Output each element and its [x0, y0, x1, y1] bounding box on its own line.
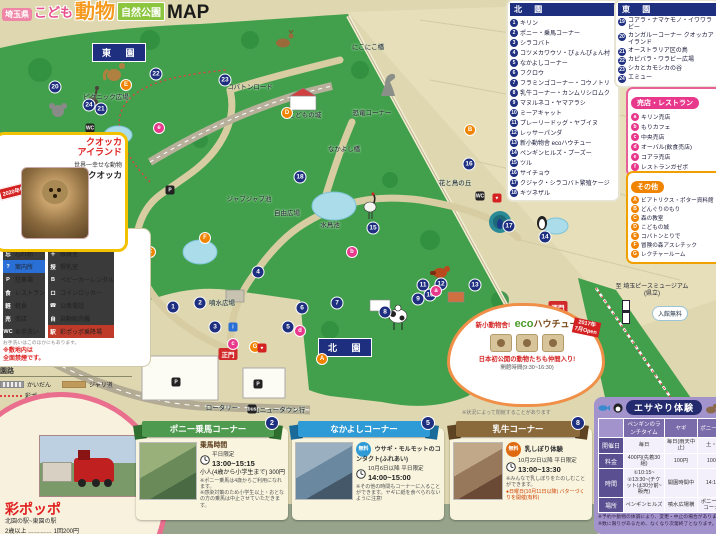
feeding-row-label: 場所	[599, 497, 624, 513]
shops-items: a キリン売店 b もりカフェ c 中央売店 d オーバル(飲食売店)	[631, 112, 716, 171]
feeding-col-penguin: ペンギンのランチタイム	[624, 419, 665, 438]
legend-icon: P	[3, 275, 13, 285]
item-label: サイチョウ	[520, 168, 550, 177]
legend-item: 自 自動販売機	[48, 312, 114, 325]
free-badge: 無料	[356, 442, 371, 457]
map-place-label: 水鳥池	[320, 219, 340, 229]
list-item: f レストランガゼボ	[631, 162, 716, 171]
item-number-badge: 16	[510, 169, 518, 177]
other-letter-marker: B	[464, 124, 476, 136]
item-letter-badge: E	[631, 232, 639, 240]
dairy-cow-corner-card: 乳牛コーナー 8 無料 乳しぼり体験 10月22日以降 平日限定 13:00~1…	[450, 428, 592, 520]
list-item: 11 プレーリードッグ・ヤブイヌ	[510, 118, 616, 127]
pony-card-photo	[139, 442, 197, 500]
pony-notes: ※ポニー乗馬は4歳からご利用になれます。※感染対策のため小学生以上・おとなの方の…	[200, 478, 285, 509]
clock-icon	[200, 455, 210, 465]
feeding-cell: 土・日	[698, 438, 716, 454]
legend-label: コインロッカー	[60, 288, 102, 297]
list-item: 1 キリン	[510, 18, 616, 27]
card-note: ※ポニー乗馬は4歳からご利用になれます。	[200, 478, 285, 491]
list-item: 13 新小動物舎 ecoハウチュー	[510, 138, 616, 147]
item-label: マヌルネコ・ヤマアラシ	[520, 98, 586, 107]
list-item: 14 ペンギンヒルズ・プーズー	[510, 148, 616, 157]
map-number-marker: 18	[294, 171, 307, 184]
crane-icon	[361, 191, 379, 221]
goat-icon	[705, 402, 716, 414]
item-number-badge: 20	[618, 33, 626, 41]
map-place-label: 自由広場	[274, 207, 300, 217]
feeding-cell: 100円	[698, 453, 716, 469]
museum-tower-icon	[622, 300, 630, 324]
map-number-marker: 13	[469, 279, 482, 292]
stairs-label: かいだん	[27, 380, 51, 389]
shop-letter-marker: d	[294, 325, 306, 337]
item-label: もりカフェ	[641, 122, 670, 131]
region-label-east: 東 園	[92, 43, 146, 62]
item-label: フクロウ	[520, 68, 544, 77]
list-item: 6 フクロウ	[510, 68, 616, 77]
feeding-cell: 400円(先着30組)	[624, 453, 665, 469]
cow-card-ribbon: 乳牛コーナー 8	[456, 421, 580, 437]
list-item: E コバトンとりで	[631, 232, 716, 240]
facility-icon: ♥	[258, 344, 267, 353]
feeding-cell: 毎日(雨天中止)	[665, 438, 698, 454]
feeding-cell: 噴水広場横	[665, 497, 698, 513]
gravel-swatch	[62, 381, 86, 388]
list-item: a キリン売店	[631, 112, 716, 121]
item-label: ポニー・乗馬コーナー	[520, 28, 580, 37]
map-number-marker: 2	[194, 297, 207, 310]
list-item: 4 コツメカワウソ・ぴょんぴょん村	[510, 48, 616, 57]
list-item: 9 マヌルネコ・ヤマアラシ	[510, 98, 616, 107]
item-number-badge: 4	[510, 49, 518, 57]
legend-label: 彩ポッポ乗降場	[60, 327, 102, 336]
pony-card-ribbon: ポニー乗馬コーナー 2	[142, 421, 274, 437]
map-number-marker: 5	[282, 321, 295, 334]
item-letter-badge: F	[631, 241, 639, 249]
item-number-badge: 2	[510, 29, 518, 37]
north-area-list: 北 園 1 キリン 2 ポニー・乗馬コーナー 3 シラコバト	[508, 1, 618, 200]
item-number-badge: 9	[510, 99, 518, 107]
legend-item: 軽 軽食	[3, 299, 45, 312]
map-place-label: なかよし橋	[328, 143, 360, 153]
eco-animal-photo	[542, 334, 564, 352]
item-label: コツメカワウソ・ぴょんぴょん村	[520, 48, 610, 57]
feeding-row-label: 料金	[599, 453, 624, 469]
cow-card-number-badge: 8	[571, 416, 585, 430]
map-place-label: 恐竜コーナー	[353, 107, 392, 117]
title-map-word: MAP	[167, 4, 209, 21]
cow-time-label: 10月22日以降 平日限定	[518, 458, 577, 465]
train-locomotive	[74, 458, 114, 482]
quokka-title-line1: クオッカ	[86, 137, 122, 147]
north-list-header: 北 園	[510, 3, 616, 16]
clock-icon	[506, 462, 516, 472]
cow-time: 13:00~13:30	[518, 465, 577, 475]
legend-item: 授 授乳室	[48, 260, 114, 273]
feeding-note: ※予約や動物の体調により、変更・中止の場合があります。	[598, 515, 716, 521]
feeding-row: 時間 ①10:15~ ②13:30~(チケットは30分前~販売) 開園時間中 1…	[599, 469, 716, 497]
eco-tagline: 日本初公開の動物たちも仲間入り!	[460, 354, 594, 363]
nakayoshi-time: 14:00~15:00	[368, 473, 424, 483]
feeding-cell: 14:15~	[698, 469, 716, 497]
feeding-table: ペンギンのランチタイム ヤギ ポニー乗馬 開催日 毎日 毎日(雨天中止) 土・日…	[598, 418, 716, 513]
map-number-marker: 21	[95, 103, 108, 116]
east-list-header: 東 園	[618, 3, 716, 16]
item-label: 冒険の森アスレチック	[641, 241, 697, 249]
item-letter-badge: e	[631, 153, 639, 161]
deer-icon	[272, 30, 296, 50]
item-label: こどもの城	[641, 223, 669, 231]
shop-letter-marker: b	[346, 246, 358, 258]
nakayoshi-time-label: 10月6日以降 平日限定	[368, 466, 424, 473]
feeding-row: 開催日 毎日 毎日(雨天中止) 土・日	[599, 438, 716, 454]
clock-icon	[356, 469, 366, 479]
free-badge: 無料	[506, 442, 521, 457]
legend-icon: ?	[3, 262, 13, 272]
item-number-badge: 12	[510, 129, 518, 137]
item-number-badge: 23	[618, 66, 626, 74]
feeding-notes: ※予約や動物の体調により、変更・中止の場合があります。※数に限りがあるため、なく…	[598, 515, 716, 527]
feeding-cell: 100円	[665, 453, 698, 469]
legend-icon: ロ	[48, 288, 58, 298]
legend-label: ベビーカーレンタル	[60, 275, 114, 284]
feeding-rows: 開催日 毎日 毎日(雨天中止) 土・日 料金 400円(先着30組) 100円 …	[599, 438, 716, 513]
item-letter-badge: d	[631, 143, 639, 151]
other-letter-marker: D	[281, 107, 293, 119]
legend-item: ? 案内所	[3, 260, 45, 273]
legend-label: お手洗い	[15, 327, 39, 336]
feeding-row: 料金 400円(先着30組) 100円 100円	[599, 453, 716, 469]
shops-restaurants-box: 売店・レストラン a キリン売店 b もりカフェ c 中央売店	[626, 87, 716, 177]
cow-highlight-note: ●日曜日(10月11日以降) バターづくりを開催(有料)	[506, 489, 589, 502]
item-label: レクチャールーム	[641, 250, 686, 258]
nakayoshi-notes: ※その他の時間もコーナーに入ることができます。ヤギに紙を食べられないように注意!	[356, 484, 441, 503]
penguin-icon	[535, 213, 549, 231]
list-item: 10 ミーアキャット	[510, 108, 616, 117]
map-number-marker: 17	[503, 220, 516, 233]
item-number-badge: 8	[510, 89, 518, 97]
feeding-note: ※数に限りがあるため、なくなり次第終了となります。	[598, 522, 716, 528]
legend-item: WC お手洗い	[3, 325, 45, 338]
item-label: エミュー	[628, 75, 652, 82]
shop-letter-marker: a	[430, 285, 442, 297]
item-letter-badge: a	[631, 113, 639, 121]
item-label: なかよしコーナー	[520, 58, 568, 67]
list-item: b もりカフェ	[631, 122, 716, 131]
item-label: コバトンとりで	[641, 232, 680, 240]
other-letter-marker: E	[120, 79, 132, 91]
pony-heading: 乗馬時間	[200, 442, 285, 451]
quokka-photo	[21, 167, 89, 239]
no-smoking-line2: 全面禁煙です。	[3, 356, 44, 362]
shop-letter-marker: e	[153, 122, 165, 134]
legend-icon: B	[48, 275, 58, 285]
penguin-head-icon	[613, 403, 623, 413]
pony-card-number-badge: 2	[265, 416, 279, 430]
eco-badge: 新小動物舎!	[475, 322, 510, 329]
eco-hours: 開館時間(9:30~16:30)	[460, 363, 594, 371]
item-number-badge: 6	[510, 69, 518, 77]
list-item: 5 なかよしコーナー	[510, 58, 616, 67]
legend-icon: 軽	[3, 301, 13, 311]
feeding-row-label: 開催日	[599, 438, 624, 454]
pony-card-title: ポニー乗馬コーナー	[170, 423, 247, 435]
item-number-badge: 18	[510, 189, 518, 197]
list-item: 20 カンガルーコーナー クオッカアイランド	[618, 33, 716, 47]
item-letter-badge: B	[631, 205, 639, 213]
legend-icon: 駅	[48, 327, 58, 337]
item-label: プレーリードッグ・ヤブイヌ	[520, 118, 598, 127]
legend-item: ロ コインロッカー	[48, 286, 114, 299]
item-number-badge: 3	[510, 39, 518, 47]
feeding-experience-panel: エサやり体験 ペンギンのランチタイム ヤギ ポニー乗馬 開催日 毎日 毎日(雨天…	[594, 397, 716, 534]
item-label: カンガルーコーナー クオッカアイランド	[628, 33, 716, 47]
item-letter-badge: C	[631, 214, 639, 222]
pony-riding-card: ポニー乗馬コーナー 2 乗馬時間 平日限定 13:00~15:15 小人(4歳か…	[136, 428, 288, 520]
road-legend-header: 園路	[0, 366, 132, 377]
gate-label: 正門	[219, 348, 238, 360]
item-letter-badge: f	[631, 163, 639, 171]
cow-notes: ※みんなで乳しぼりをたのしむことができます。	[506, 476, 589, 489]
shop-letter-marker: c	[227, 338, 239, 350]
feeding-col-pony: ポニー乗馬	[698, 419, 716, 438]
list-item: 15 ツル	[510, 158, 616, 167]
map-place-label: ロータリー	[206, 402, 239, 412]
eco-animal-photo	[516, 334, 538, 352]
item-label: 中央売店	[641, 132, 665, 141]
eco-house-callout: 新小動物舎! ecoハウチュー 2017年 7月Open 日本初公開の動物たちも…	[447, 303, 605, 407]
item-label: レッサーパンダ	[520, 128, 562, 137]
eco-note: ※状況によって閉館することがあります	[462, 409, 551, 416]
item-label: レストランガゼボ	[641, 162, 688, 171]
item-number-badge: 13	[510, 139, 518, 147]
quokka-callout-title: クオッカ アイランド	[0, 138, 122, 158]
list-item: 23 シカとカモシカの谷	[618, 66, 716, 74]
list-item: d オーバル(飲食売店)	[631, 142, 716, 151]
list-item: 7 フラミンゴコーナー・コウノトリ	[510, 78, 616, 87]
item-label: どんぐりのもり	[641, 205, 680, 213]
legend-icon: 自	[48, 314, 58, 324]
item-label: キツネザル	[520, 188, 550, 197]
cow-card-photo	[453, 442, 503, 500]
others-header: その他	[631, 181, 664, 193]
list-item: D こどもの城	[631, 223, 716, 231]
map-number-marker: 1	[167, 301, 180, 314]
list-item: 22 カピバラ・ワラビー広場	[618, 57, 716, 65]
item-number-badge: 22	[618, 57, 626, 65]
other-letter-marker: A	[316, 353, 328, 365]
nakayoshi-card-number-badge: 5	[421, 416, 435, 430]
list-item: 21 オーストラリア区の鳥	[618, 48, 716, 56]
map-number-marker: 15	[367, 222, 380, 235]
list-item: F 冒険の森アスレチック	[631, 241, 716, 249]
eco-name-en: eco	[515, 318, 534, 330]
no-smoking-line1: ※敷地内は	[3, 348, 33, 354]
legend-icon: 授	[48, 262, 58, 272]
title-dobutsu: 動物	[75, 3, 115, 21]
free-admission-bubble: 入館無料	[652, 306, 688, 321]
facility-icon: P	[254, 380, 263, 389]
legend-label: 公衆電話	[60, 301, 84, 310]
feeding-cell: 開園時間中	[665, 469, 698, 497]
item-letter-badge: A	[631, 196, 639, 204]
item-label: クジャク・シラコバト繁殖ケージ	[520, 178, 610, 187]
item-number-badge: 17	[510, 179, 518, 187]
item-letter-badge: b	[631, 123, 639, 131]
item-label: キリン売店	[641, 112, 670, 121]
stairs-swatch	[0, 381, 24, 388]
item-letter-badge: c	[631, 133, 639, 141]
facility-icon: WC	[476, 192, 485, 201]
others-items: A ビアトリクス・ポター資料館 B どんぐりのもり C 森の教室 D こどもの城	[631, 196, 716, 258]
list-item: 3 シラコバト	[510, 38, 616, 47]
list-item: 17 クジャク・シラコバト繁殖ケージ	[510, 178, 616, 187]
cow-heading: 乳しぼり体験	[525, 446, 563, 453]
item-number-badge: 11	[510, 119, 518, 127]
item-label: ペンギンヒルズ・プーズー	[520, 148, 592, 157]
nakayoshi-card-title: なかよしコーナー	[330, 423, 398, 435]
legend-item: P 駐車場	[3, 273, 45, 286]
eco-animal-photo	[490, 334, 512, 352]
fish-icon	[598, 403, 610, 413]
feeding-cell: ①10:15~ ②13:30~(チケットは30分前~販売)	[624, 469, 665, 497]
facility-icon: bus	[248, 405, 257, 414]
feeding-cell: ペンギンヒルズ	[624, 497, 665, 513]
map-number-marker: 24	[83, 99, 96, 112]
no-smoking-note: ※敷地内は 全面禁煙です。	[3, 348, 147, 363]
legend-item: B ベビーカーレンタル	[48, 273, 114, 286]
map-place-label: 花と鳥の丘	[439, 177, 472, 187]
legend-label: 駐車場	[15, 275, 33, 284]
pony-time-label: 平日限定	[212, 452, 255, 459]
list-item: C 森の教室	[631, 214, 716, 222]
quokka-title-line2: アイランド	[77, 147, 122, 157]
item-label: シカとカモシカの谷	[628, 66, 682, 73]
item-label: キリン	[520, 18, 538, 27]
eco-animal-photos	[460, 334, 594, 352]
others-box: その他 A ビアトリクス・ポター資料館 B どんぐりのもり C 森の教室	[626, 171, 716, 264]
legend-item: 売 売店	[3, 312, 45, 325]
koala-icon	[48, 100, 68, 120]
item-label: オーストラリア区の鳥	[628, 48, 688, 55]
map-place-label: こどもの城	[289, 109, 322, 119]
map-number-marker: 14	[539, 231, 552, 244]
nakayoshi-card-photo	[295, 442, 353, 500]
gravel-label: ジャリ道	[89, 380, 113, 389]
other-letter-marker: F	[199, 232, 211, 244]
train-wagon	[42, 462, 72, 482]
title-shizen-koen: 自然公園	[117, 2, 165, 21]
item-number-badge: 24	[618, 75, 626, 83]
shops-header: 売店・レストラン	[631, 97, 699, 109]
item-letter-badge: D	[631, 223, 639, 231]
list-item: 12 レッサーパンダ	[510, 128, 616, 137]
sai-poppo-price: 2歳以上 ………… 1回200円	[5, 526, 79, 534]
facility-icon: P	[172, 378, 181, 387]
map-number-marker: 3	[209, 321, 222, 334]
list-item: 18 キツネザル	[510, 188, 616, 197]
item-letter-badge: G	[631, 250, 639, 258]
legend-sub-note: お手洗いはこのほかにもあります。	[3, 339, 147, 346]
item-label: フラミンゴコーナー・コウノトリ	[520, 78, 610, 87]
legend-label: 売店	[15, 314, 27, 323]
nakayoshi-corner-card: なかよしコーナー 5 無料 ウサギ・モルモットのコンタクト(ふれあい) 10月6…	[292, 428, 444, 520]
feeding-row-label: 時間	[599, 469, 624, 497]
museum-destination: 至 埼玉ピースミュージアム	[616, 284, 689, 290]
zoo-map-page: 埼玉県 こども 動物 自然公園 MAP 東 園 北 園 ピクニック広場コバトンロ…	[0, 0, 716, 534]
legend-label: レストラン	[15, 288, 45, 297]
page-title: 埼玉県 こども 動物 自然公園 MAP	[2, 2, 209, 21]
item-label: ビアトリクス・ポター資料館	[641, 196, 714, 204]
item-number-badge: 1	[510, 19, 518, 27]
list-item: 24 エミュー	[618, 75, 716, 83]
map-place-label: コバトンロード	[227, 81, 273, 91]
list-item: 8 乳牛コーナー・カンムリシロムク	[510, 88, 616, 97]
cow-card-title: 乳牛コーナー	[492, 423, 543, 435]
item-label: ツル	[520, 158, 532, 167]
item-label: 森の教室	[641, 214, 663, 222]
map-number-marker: 23	[219, 74, 232, 87]
feeding-cell: ポニー乗馬コーナー	[698, 497, 716, 513]
item-label: カピバラ・ワラビー広場	[628, 57, 694, 64]
legend-label: 自動販売機	[60, 314, 90, 323]
list-item: 19 コアラ・ナマケモノ・イワワラビー	[618, 18, 716, 32]
item-number-badge: 21	[618, 48, 626, 56]
nakayoshi-card-ribbon: なかよしコーナー 5	[298, 421, 430, 437]
item-number-badge: 7	[510, 79, 518, 87]
item-number-badge: 5	[510, 59, 518, 67]
item-label: シラコバト	[520, 38, 550, 47]
pony-time: 13:00~15:15	[212, 459, 255, 469]
feeding-cell: 毎日	[624, 438, 665, 454]
feeding-col-goat: ヤギ	[665, 419, 698, 438]
title-kodomo: こども	[34, 2, 73, 21]
sai-poppo-route: 北園の駅~東園の駅	[5, 516, 57, 525]
sai-poppo-photo	[39, 435, 143, 497]
item-label: コアラ売店	[641, 152, 670, 161]
map-number-marker: 22	[150, 68, 163, 81]
facility-icon: i	[229, 323, 238, 332]
train-route-swatch	[0, 395, 22, 397]
title-prefecture: 埼玉県	[2, 8, 32, 21]
list-item: B どんぐりのもり	[631, 205, 716, 213]
museum-subtitle: (県立)	[644, 291, 660, 297]
map-number-marker: 11	[417, 279, 430, 292]
legend-icon: WC	[3, 327, 13, 337]
map-place-label: 噴水広場	[209, 297, 235, 307]
map-place-label: にこにこ橋	[352, 41, 384, 51]
map-number-marker: 7	[331, 297, 344, 310]
east-area-list: 東 園 19 コアラ・ナマケモノ・イワワラビー 20 カンガルーコーナー クオッ…	[616, 1, 716, 86]
legend-item: 駅 彩ポッポ乗降場	[48, 325, 114, 338]
map-number-marker: 8	[379, 306, 392, 319]
list-item: 2 ポニー・乗馬コーナー	[510, 28, 616, 37]
north-list-items: 1 キリン 2 ポニー・乗馬コーナー 3 シラコバト 4 コツメカワウソ・ぴょん…	[510, 18, 616, 197]
item-number-badge: 10	[510, 109, 518, 117]
item-label: ミーアキャット	[520, 108, 562, 117]
legend-item: ☎ 公衆電話	[48, 299, 114, 312]
list-item: e コアラ売店	[631, 152, 716, 161]
item-number-badge: 15	[510, 159, 518, 167]
feeding-title: エサやり体験	[626, 400, 702, 415]
card-note: ※その他の時間もコーナーに入ることができます。ヤギに紙を食べられないように注意!	[356, 484, 441, 503]
list-item: G レクチャールーム	[631, 250, 716, 258]
legend-label: 案内所	[15, 262, 33, 271]
list-item: 16 サイチョウ	[510, 168, 616, 177]
item-label: コアラ・ナマケモノ・イワワラビー	[628, 18, 716, 32]
list-item: A ビアトリクス・ポター資料館	[631, 196, 716, 204]
